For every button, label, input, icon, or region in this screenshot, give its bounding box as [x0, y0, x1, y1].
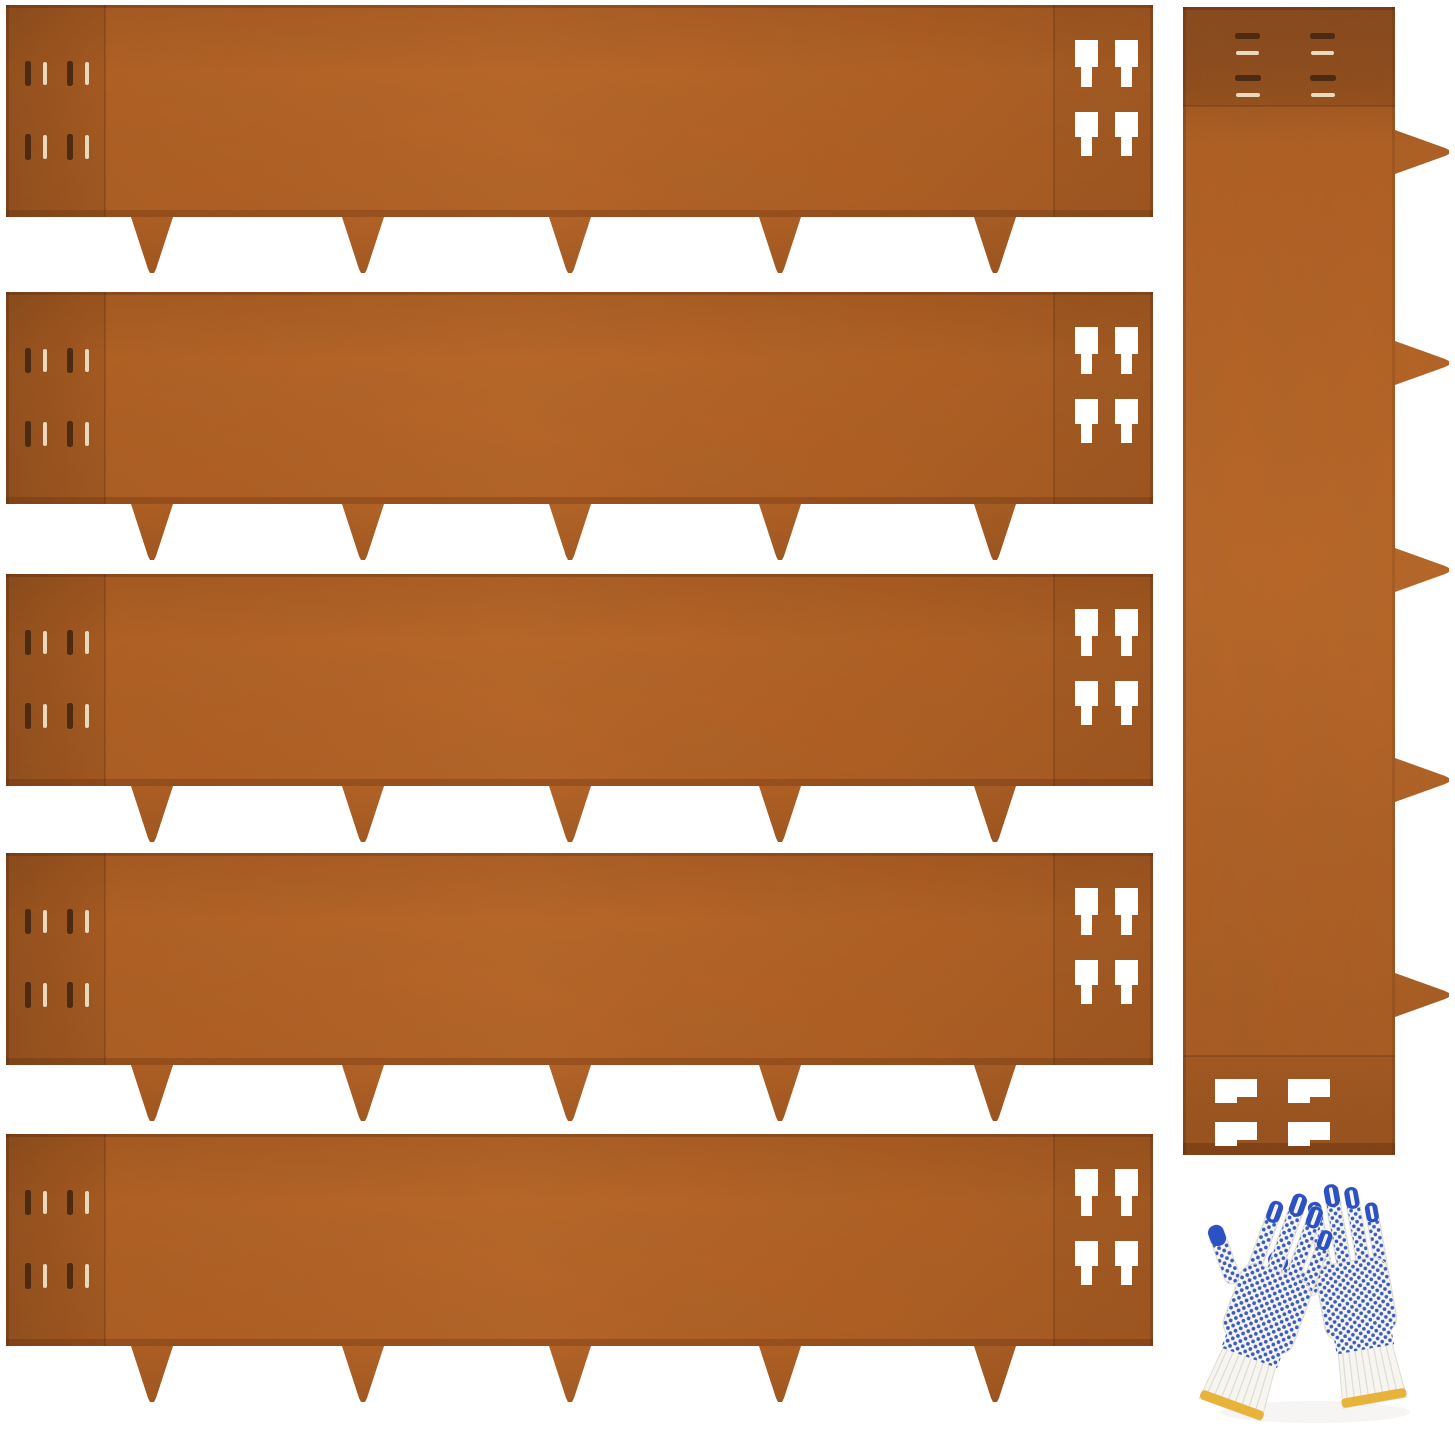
edging-strip-2 [6, 290, 1156, 562]
glove-left [1180, 1172, 1343, 1422]
work-gloves-pair [1180, 1172, 1455, 1429]
edging-strip-5 [6, 1132, 1156, 1404]
edging-strip-1 [6, 3, 1156, 275]
edging-strip-vertical [1183, 7, 1453, 1157]
product-photo [0, 0, 1455, 1429]
edging-strip-4 [6, 851, 1156, 1123]
edging-strip-3 [6, 572, 1156, 844]
